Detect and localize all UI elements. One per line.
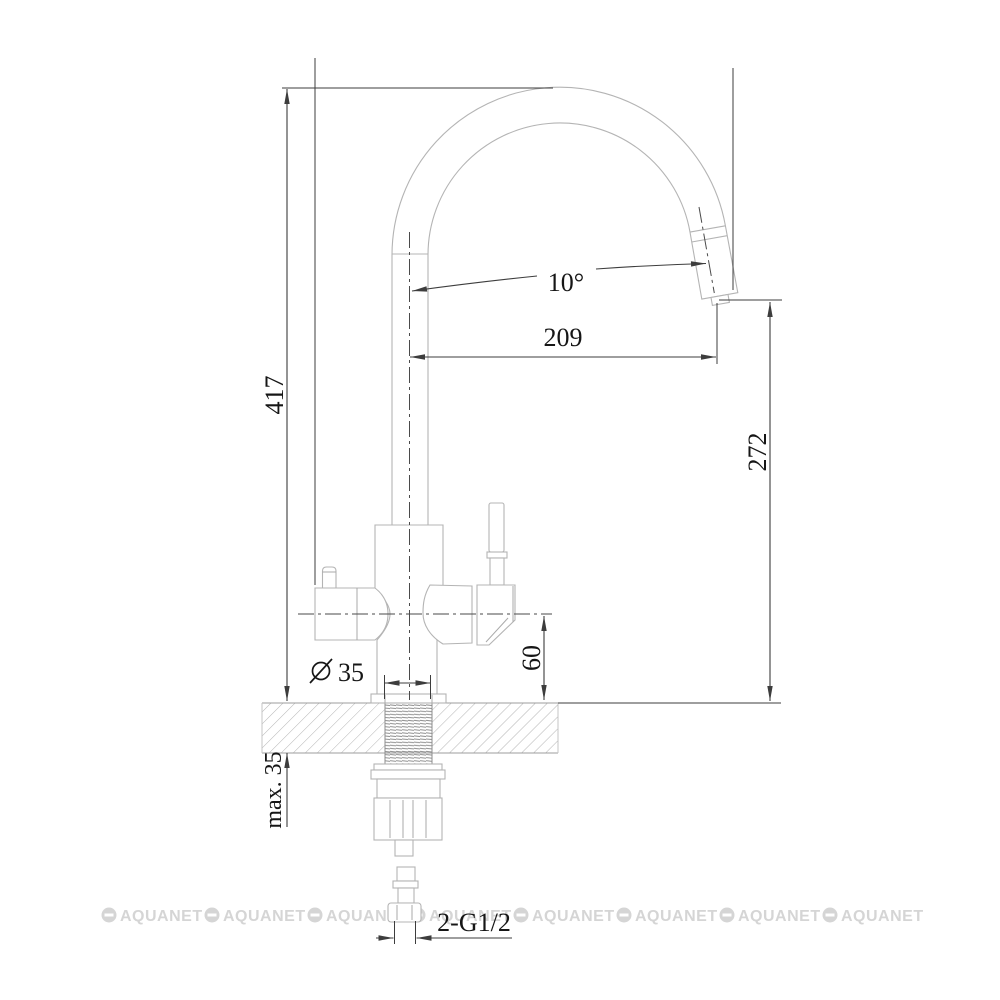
dimension-label: 10° (548, 268, 584, 297)
diameter-symbol-icon (310, 659, 332, 683)
lock-washer (374, 764, 442, 770)
logo-dash (311, 914, 320, 917)
dimension-overall-height: 417 (260, 89, 289, 701)
angle-leader-right (596, 264, 706, 270)
watermark-row: AQUANET AQUANET AQUANET AQUANET AQUANET … (102, 908, 924, 926)
watermark-label: AQUANET (120, 908, 203, 925)
logo-dash (208, 914, 217, 917)
dimension-label: 35 (338, 658, 364, 687)
watermark: AQUANET (514, 908, 615, 926)
lever-stem (490, 558, 504, 585)
lever-flange (487, 552, 507, 558)
outlet-stem (395, 840, 413, 856)
watermark: AQUANET (823, 908, 924, 926)
hose-stem (397, 867, 415, 881)
countertop-section (262, 703, 558, 764)
logo-dash (723, 914, 732, 917)
countertop-hatch-left (262, 703, 385, 753)
faucet-dimension-drawing: AQUANET AQUANET AQUANET AQUANET AQUANET … (0, 0, 1000, 1000)
right-handle-body (477, 585, 515, 645)
watermark-label: AQUANET (738, 908, 821, 925)
dimension-label: 2-G1/2 (437, 908, 511, 937)
left-valve-knob (323, 567, 337, 588)
watermark-label: AQUANET (635, 908, 718, 925)
dimension-spout-angle: 10° (412, 264, 706, 298)
logo-dash (826, 914, 835, 917)
dimension-label: 417 (260, 376, 289, 415)
dimension-deck-thickness: max. 35 (261, 751, 287, 828)
hose-neck (398, 888, 414, 903)
dimension-label: 60 (517, 645, 546, 671)
hose-collar (393, 881, 418, 888)
logo-dash (517, 914, 526, 917)
dimension-outlet-height: 272 (743, 302, 772, 701)
watermark: AQUANET (720, 908, 821, 926)
watermark-label: AQUANET (841, 908, 924, 925)
watermark: AQUANET (102, 908, 203, 926)
countertop-hatch-right (432, 703, 558, 753)
watermark: AQUANET (205, 908, 306, 926)
base-flange (371, 694, 446, 703)
spout-tube (392, 87, 738, 525)
watermark-label: AQUANET (532, 908, 615, 925)
right-handle-lever (489, 503, 504, 552)
dimension-spout-reach: 209 (410, 323, 716, 357)
faucet-outline (315, 87, 738, 703)
hex-nut (388, 903, 421, 922)
dimension-label: 272 (743, 433, 772, 472)
mounting-shank-thread (385, 703, 432, 764)
knurled-nut (374, 798, 442, 840)
logo-dash (620, 914, 629, 917)
watermark: AQUANET (617, 908, 718, 926)
logo-dash (105, 914, 114, 917)
angle-leader-left (412, 276, 537, 291)
mounting-nut-flange (371, 770, 445, 779)
tailpiece (371, 764, 445, 922)
dimension-label: max. 35 (261, 751, 287, 828)
drawing-canvas: AQUANET AQUANET AQUANET AQUANET AQUANET … (0, 0, 1000, 1000)
watermark-label: AQUANET (223, 908, 306, 925)
dimension-body-height: 60 (517, 616, 546, 700)
mounting-nut-body (377, 779, 440, 798)
dimension-label: 209 (544, 323, 583, 352)
